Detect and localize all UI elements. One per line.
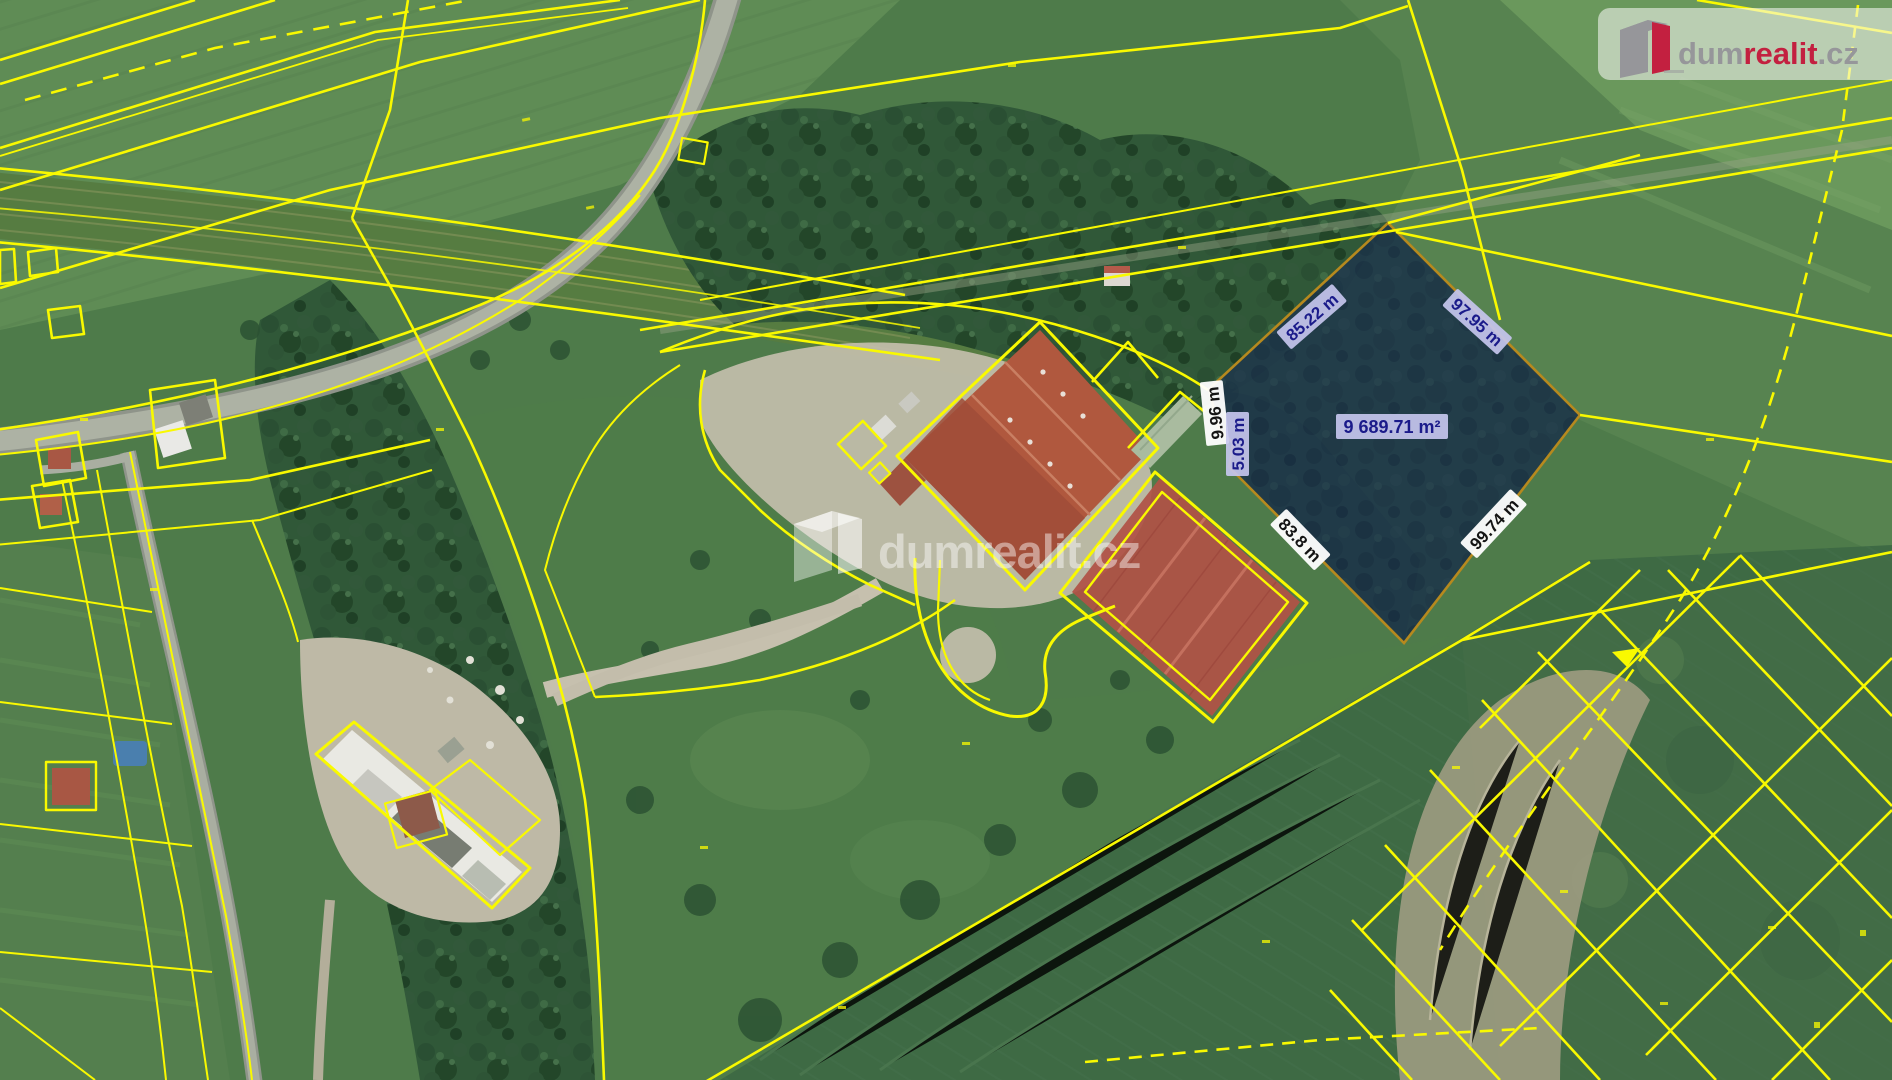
map-viewport[interactable]: 85.22 m 97.95 m 9.96 m 5.03 m 83.8 m 99.… [0, 0, 1892, 1080]
watermark-text: dumrealit.cz [878, 525, 1140, 578]
measurement-text-w-lower: 5.03 m [1229, 418, 1248, 471]
logo-text-dum: dum [1678, 36, 1743, 71]
cadastral-map-canvas[interactable]: 85.22 m 97.95 m 9.96 m 5.03 m 83.8 m 99.… [0, 0, 1892, 1080]
logo-text: dumrealit.cz [1678, 36, 1859, 71]
parcel-area-text: 9 689.71 m² [1343, 417, 1440, 437]
measurement-label-w-lower: 5.03 m [1226, 412, 1249, 476]
logo-text-cz: .cz [1818, 36, 1859, 71]
dumrealit-logo: dumrealit.cz [1598, 8, 1892, 80]
parcel-area-label: 9 689.71 m² [1336, 414, 1448, 439]
logo-text-realit: realit [1743, 36, 1817, 71]
house-sw [52, 768, 90, 805]
